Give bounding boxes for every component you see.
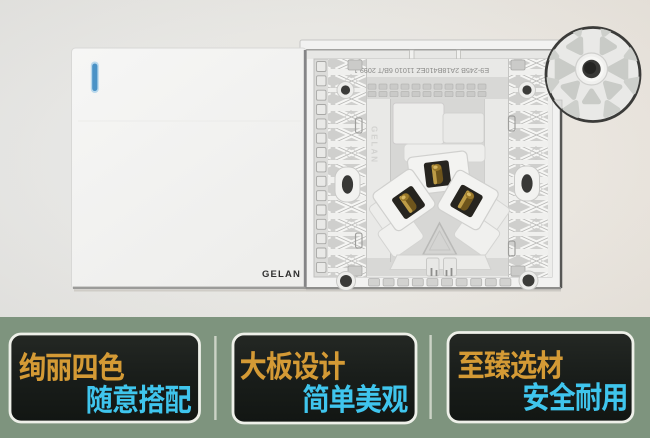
svg-text:GELAN: GELAN <box>370 126 379 164</box>
svg-text:E9-245B 2A18B410EZ 11010 6B: E9-245B 2A18B410EZ 11010 6B/T 2099.1 <box>354 66 489 75</box>
svg-text:GELAN: GELAN <box>262 269 301 280</box>
